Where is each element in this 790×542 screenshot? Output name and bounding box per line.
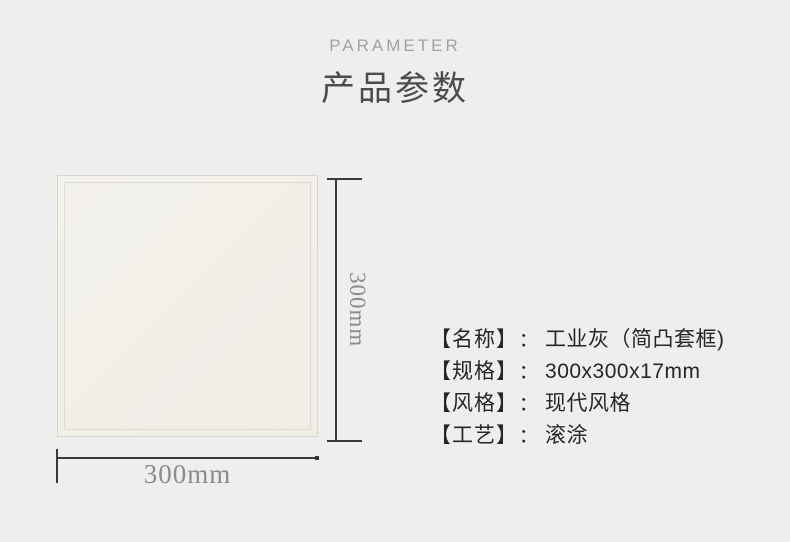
height-dimension-label: 300mm <box>341 179 373 441</box>
spec-separator: ： <box>519 325 538 357</box>
spec-value: 工业灰（简凸套框) <box>545 324 725 356</box>
spec-list: 【名称】 ： 工业灰（简凸套框) 【规格】 ： 300x300x17mm 【风格… <box>430 324 725 452</box>
spec-row-name: 【名称】 ： 工业灰（简凸套框) <box>430 324 725 356</box>
vertical-dimension-line <box>335 179 337 441</box>
spec-separator: ： <box>519 421 538 453</box>
spec-row-craft: 【工艺】 ： 滚涂 <box>430 420 725 452</box>
product-tile-image <box>57 175 318 437</box>
spec-label: 【工艺】 <box>430 420 518 452</box>
spec-label: 【名称】 <box>430 324 518 356</box>
spec-value: 现代风格 <box>545 388 631 420</box>
spec-value: 滚涂 <box>545 420 588 452</box>
spec-separator: ： <box>519 389 538 421</box>
spec-label: 【规格】 <box>430 356 518 388</box>
spec-label: 【风格】 <box>430 388 518 420</box>
spec-value: 300x300x17mm <box>545 356 700 388</box>
page-title: 产品参数 <box>0 61 790 110</box>
section-eyebrow: PARAMETER <box>0 36 790 56</box>
spec-separator: ： <box>519 357 538 389</box>
spec-row-size: 【规格】 ： 300x300x17mm <box>430 356 725 388</box>
product-parameter-section: PARAMETER 产品参数 300mm 300mm 【名称】 ： 工业灰（简凸… <box>0 0 790 542</box>
spec-row-style: 【风格】 ： 现代风格 <box>430 388 725 420</box>
width-dimension-label: 300mm <box>57 459 318 490</box>
